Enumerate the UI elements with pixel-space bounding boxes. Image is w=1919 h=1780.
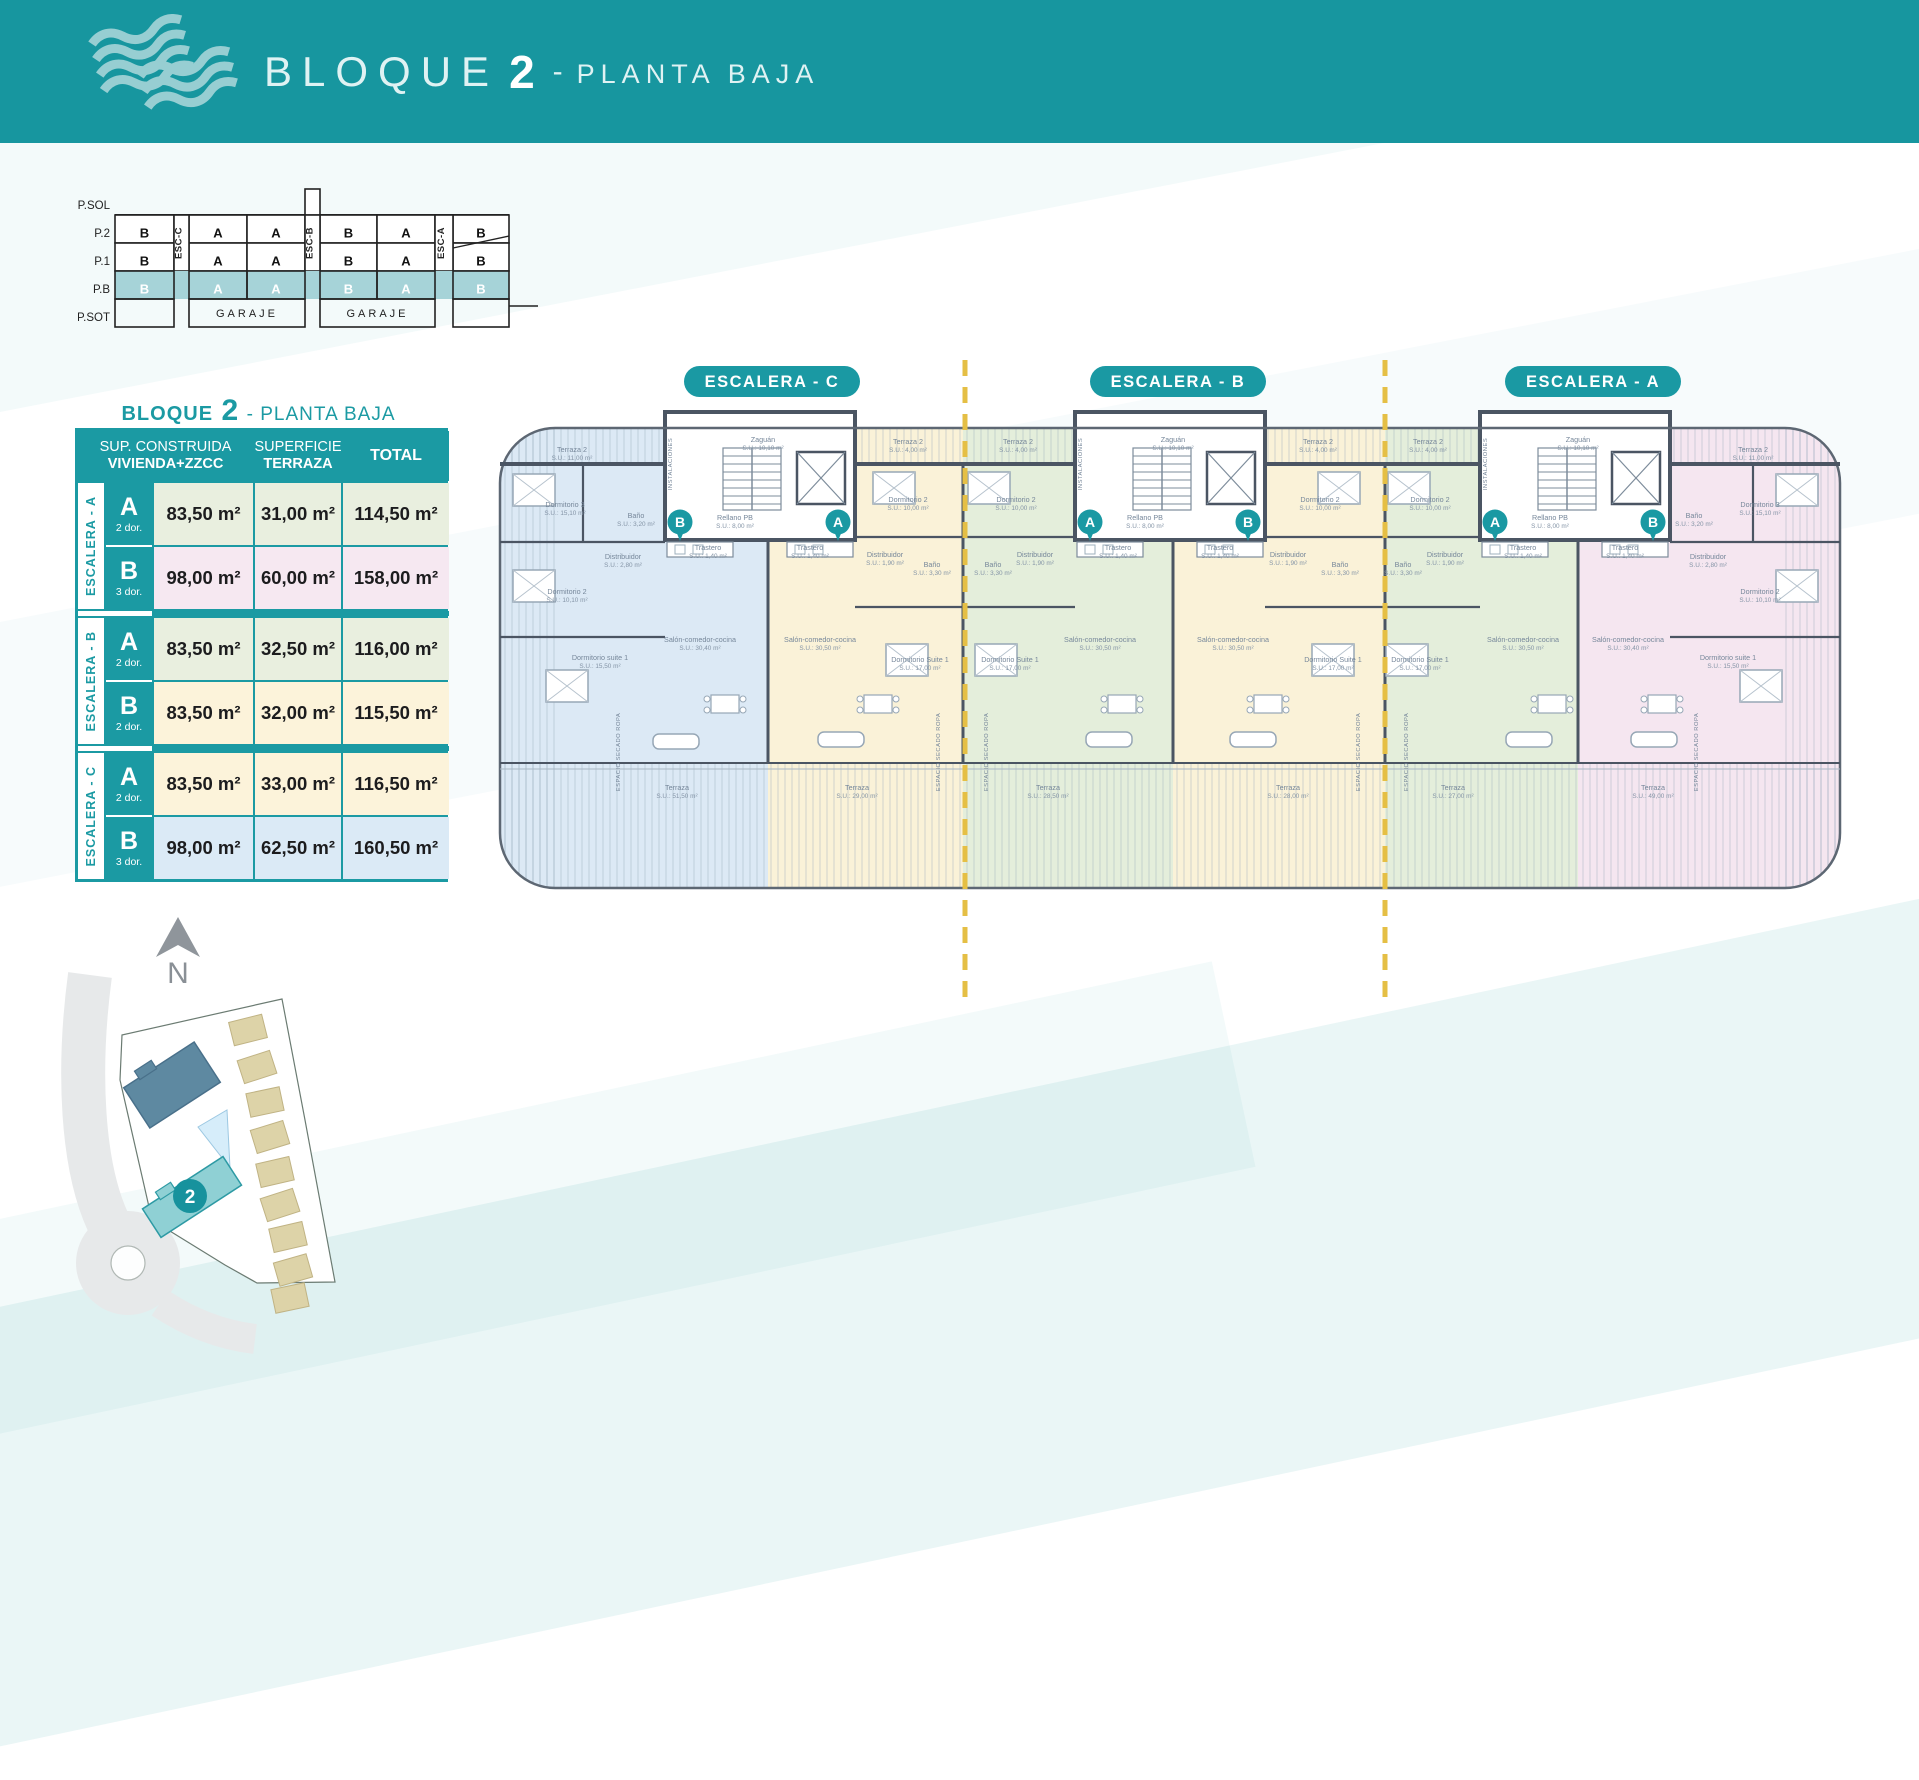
room-area-label: S.U.: 15,50 m² (579, 663, 620, 670)
title-block: BLOQUE (264, 48, 499, 96)
room-label: Baño (1686, 511, 1703, 520)
surface-table: SUP. CONSTRUIDA VIVIENDA+ZZCC SUPERFICIE… (75, 428, 448, 882)
cell-total: 115,50 m² (343, 682, 449, 744)
room-label: Dormitorio suite 1 (572, 653, 628, 662)
stair-core-a (1480, 412, 1670, 557)
unit-entrance-letter: B (1243, 514, 1253, 530)
room-label: Terraza 2 (1303, 437, 1333, 446)
title-floor: PLANTA BAJA (577, 53, 820, 90)
stack-unit-letter: B (344, 226, 353, 241)
stack-unit-letter: B (344, 254, 353, 269)
floor-plan: Terraza 2S.U.: 11,00 m²Dormitorio 3S.U.:… (488, 352, 1852, 1004)
header-line: TOTAL (370, 447, 422, 465)
room-area-label: S.U.: 4,00 m² (1299, 447, 1337, 454)
esc-label: ESC-C (174, 227, 185, 259)
cell-terraza: 32,00 m² (255, 682, 341, 744)
room-area-label: S.U.: 3,30 m² (913, 570, 951, 577)
unit-badge-a: A2 dor. (106, 753, 152, 815)
room-label: Terraza 2 (893, 437, 923, 446)
table-title-post: - PLANTA BAJA (247, 404, 396, 425)
stack-unit-letter: B (476, 282, 485, 297)
room-label: INSTALACIONES (1078, 438, 1084, 490)
stack-unit-letter: A (213, 254, 223, 269)
room-label: Salón-comedor-cocina (1064, 635, 1136, 644)
room-area-label: S.U.: 4,00 m² (889, 447, 927, 454)
cell-sup: 83,50 m² (154, 618, 253, 680)
title-separator: - (553, 55, 563, 89)
unit-badge-b: B3 dor. (106, 547, 152, 609)
room-area-label: S.U.: 1,40 m² (1504, 553, 1542, 560)
room-label: Dormitorio 2 (1300, 495, 1339, 504)
unit-entrance-letter: A (1085, 514, 1095, 530)
room-area-label: S.U.: 10,10 m² (546, 597, 587, 604)
group-label-escalera-b: ESCALERA - B (78, 618, 104, 744)
garaje-label: GARAJE (346, 308, 408, 320)
room-area-label: S.U.: 15,10 m² (1739, 510, 1780, 517)
room-area-label: S.U.: 8,00 m² (1126, 523, 1164, 530)
cell-terraza: 31,00 m² (255, 483, 341, 545)
room-area-label: S.U.: 8,00 m² (1531, 523, 1569, 530)
unit-badge-b: B2 dor. (106, 682, 152, 744)
room-label: Dormitorio 2 (1410, 495, 1449, 504)
room-label: Distribuidor (1690, 552, 1727, 561)
room-label: Terraza (845, 783, 869, 792)
room-area-label: S.U.: 30,40 m² (1607, 645, 1648, 652)
room-label: Dormitorio Suite 1 (1391, 655, 1449, 664)
room-label: Dormitorio Suite 1 (981, 655, 1039, 664)
room-area-label: S.U.: 10,10 m² (1557, 445, 1598, 452)
cell-sup: 83,50 m² (154, 753, 253, 815)
escalera-section-labels: ESCALERA - CESCALERA - BESCALERA - A (684, 366, 1681, 397)
room-label: Baño (1395, 560, 1412, 569)
north-arrow-icon (156, 917, 200, 957)
room-label: Terraza (665, 783, 689, 792)
room-label: Distribuidor (605, 552, 642, 561)
room-area-label: S.U.: 1,40 m² (1606, 553, 1644, 560)
header-bar: BLOQUE 2 - PLANTA BAJA (0, 0, 1919, 143)
room-label: Zaguán (751, 435, 775, 444)
group-label-escalera-a: ESCALERA - A (78, 483, 104, 609)
room-label: Terraza 2 (1738, 445, 1768, 454)
group-separator (78, 746, 152, 751)
room-area-label: S.U.: 2,80 m² (1689, 562, 1727, 569)
stack-unit-letter: A (213, 226, 223, 241)
group-separator (78, 611, 152, 616)
room-label: Trastero (1612, 543, 1639, 552)
header-line: SUPERFICIE (255, 439, 342, 456)
room-area-label: S.U.: 3,30 m² (974, 570, 1012, 577)
escalera-pill-label: ESCALERA - C (705, 373, 840, 391)
room-label: Salón-comedor-cocina (664, 635, 736, 644)
room-area-label: S.U.: 10,10 m² (1152, 445, 1193, 452)
cell-terraza: 33,00 m² (255, 753, 341, 815)
stack-unit-letter: A (213, 282, 223, 297)
room-area-label: S.U.: 10,00 m² (1299, 505, 1340, 512)
cell-total: 114,50 m² (343, 483, 449, 545)
floor-label: P.2 (94, 228, 110, 240)
unit-badges: A2 dor. B3 dor. (106, 753, 152, 879)
table-title: BLOQUE 2 - PLANTA BAJA (75, 394, 442, 428)
room-label: Salón-comedor-cocina (1592, 635, 1664, 644)
stack-unit-letter: A (271, 282, 281, 297)
room-area-label: S.U.: 1,40 m² (689, 553, 727, 560)
cell-total: 160,50 m² (343, 817, 449, 879)
room-label: Salón-comedor-cocina (1487, 635, 1559, 644)
header-line: TERRAZA (263, 456, 332, 473)
room-area-label: S.U.: 15,50 m² (1707, 663, 1748, 670)
group-label-escalera-c: ESCALERA - C (78, 753, 104, 879)
unit-entrance-letter: A (1490, 514, 1500, 530)
room-label: Rellano PB (1127, 513, 1163, 522)
room-label: Trastero (1207, 543, 1234, 552)
room-label: ESPACIO SECADO ROPA (616, 713, 622, 792)
unit-badges: A2 dor. B2 dor. (106, 618, 152, 744)
unit-entrance-letter: B (1648, 514, 1658, 530)
stack-unit-letter: A (401, 282, 411, 297)
room-label: ESPACIO SECADO ROPA (984, 713, 990, 792)
esc-label: ESC-B (305, 227, 316, 259)
page-title: BLOQUE 2 - PLANTA BAJA (264, 0, 819, 143)
room-area-label: S.U.: 30,50 m² (1212, 645, 1253, 652)
brand-logo (88, 14, 238, 129)
room-label: Baño (1332, 560, 1349, 569)
stack-unit-letter: A (401, 254, 411, 269)
garaje-label: GARAJE (216, 308, 278, 320)
room-label: Zaguán (1566, 435, 1590, 444)
cell-total: 158,00 m² (343, 547, 449, 609)
cell-terraza: 60,00 m² (255, 547, 341, 609)
room-area-label: S.U.: 1,90 m² (1426, 560, 1464, 567)
cell-sup: 83,50 m² (154, 682, 253, 744)
room-area-label: S.U.: 30,50 m² (1079, 645, 1120, 652)
room-area-label: S.U.: 17,00 m² (899, 665, 940, 672)
stack-unit-letter: B (140, 226, 149, 241)
room-area-label: S.U.: 10,00 m² (995, 505, 1036, 512)
room-label: Trastero (1105, 543, 1132, 552)
unit-entrance-letter: A (833, 514, 843, 530)
unit-badge-b: B3 dor. (106, 817, 152, 879)
room-area-label: S.U.: 10,00 m² (1409, 505, 1450, 512)
stack-unit-letter: B (344, 282, 353, 297)
room-area-label: S.U.: 11,00 m² (552, 455, 593, 462)
room-area-label: S.U.: 29,00 m² (836, 793, 877, 800)
site-map: 2 N (60, 915, 360, 1360)
room-area-label: S.U.: 1,40 m² (791, 553, 829, 560)
building-stack-diagram: P.SOLP.2P.1P.BP.SOTBAABABBAABABBAABABESC… (78, 188, 548, 344)
room-area-label: S.U.: 51,50 m² (656, 793, 697, 800)
escalera-pill-label: ESCALERA - B (1111, 373, 1246, 391)
col-header-terraza: SUPERFICIE TERRAZA (255, 431, 341, 481)
header-line: VIVIENDA+ZZCC (108, 456, 224, 473)
group-separator (154, 746, 449, 751)
room-area-label: S.U.: 15,10 m² (544, 510, 585, 517)
room-area-label: S.U.: 3,30 m² (1321, 570, 1359, 577)
room-label: ESPACIO SECADO ROPA (936, 713, 942, 792)
floor-label: P.B (93, 284, 110, 296)
room-area-label: S.U.: 1,40 m² (1099, 553, 1137, 560)
unit-badges: A2 dor. B3 dor. (106, 483, 152, 609)
stack-unit-letter: B (476, 226, 485, 241)
escalera-pill-label: ESCALERA - A (1526, 373, 1660, 391)
unit-badge-a: A2 dor. (106, 483, 152, 545)
room-label: Terraza 2 (1413, 437, 1443, 446)
group-separator (154, 611, 449, 616)
room-area-label: S.U.: 1,40 m² (1201, 553, 1239, 560)
room-label: Baño (628, 511, 645, 520)
room-label: INSTALACIONES (668, 438, 674, 490)
floor-label: P.1 (94, 256, 110, 268)
stack-unit-letter: B (140, 254, 149, 269)
floor-label: P.SOL (78, 200, 111, 212)
room-label: Salón-comedor-cocina (1197, 635, 1269, 644)
room-label: ESPACIO SECADO ROPA (1356, 713, 1362, 792)
room-area-label: S.U.: 27,00 m² (1432, 793, 1473, 800)
cell-terraza: 62,50 m² (255, 817, 341, 879)
room-label: Dormitorio 2 (996, 495, 1035, 504)
floor-label: P.SOT (78, 312, 110, 324)
room-area-label: S.U.: 30,40 m² (679, 645, 720, 652)
room-label: Trastero (797, 543, 824, 552)
room-area-label: S.U.: 1,90 m² (866, 560, 904, 567)
stack-unit-letter: A (271, 226, 281, 241)
room-area-label: S.U.: 30,50 m² (799, 645, 840, 652)
room-label: Trastero (695, 543, 722, 552)
unit-entrance-letter: B (675, 514, 685, 530)
stair-core-c (665, 412, 855, 557)
room-label: Distribuidor (1017, 550, 1054, 559)
room-label: Dormitorio Suite 1 (891, 655, 949, 664)
stair-core-b (1075, 412, 1265, 557)
room-label: Distribuidor (867, 550, 904, 559)
room-label: Zaguán (1161, 435, 1185, 444)
room-label: Distribuidor (1427, 550, 1464, 559)
room-label: Distribuidor (1270, 550, 1307, 559)
room-label: Baño (924, 560, 941, 569)
table-title-num: 2 (222, 394, 239, 427)
room-area-label: S.U.: 17,00 m² (989, 665, 1030, 672)
room-label: Terraza (1036, 783, 1060, 792)
page: { "header": { "title_block": "BLOQUE", "… (0, 0, 1919, 1365)
cell-sup: 83,50 m² (154, 483, 253, 545)
room-area-label: S.U.: 3,30 m² (1384, 570, 1422, 577)
room-area-label: S.U.: 8,00 m² (716, 523, 754, 530)
room-label: Terraza 2 (557, 445, 587, 454)
room-area-label: S.U.: 4,00 m² (1409, 447, 1447, 454)
room-label: Terraza 2 (1003, 437, 1033, 446)
room-label: Dormitorio Suite 1 (1304, 655, 1362, 664)
stack-unit-letter: B (140, 282, 149, 297)
room-label: Dormitorio suite 1 (1700, 653, 1756, 662)
room-label: Terraza (1641, 783, 1665, 792)
room-area-label: S.U.: 17,00 m² (1312, 665, 1353, 672)
room-area-label: S.U.: 49,00 m² (1632, 793, 1673, 800)
room-area-label: S.U.: 10,10 m² (742, 445, 783, 452)
room-area-label: S.U.: 30,50 m² (1502, 645, 1543, 652)
north-label: N (167, 957, 189, 990)
room-label: Baño (985, 560, 1002, 569)
room-area-label: S.U.: 1,90 m² (1016, 560, 1054, 567)
room-label: Terraza (1276, 783, 1300, 792)
cell-sup: 98,00 m² (154, 817, 253, 879)
room-area-label: S.U.: 1,90 m² (1269, 560, 1307, 567)
room-label: ESPACIO SECADO ROPA (1694, 713, 1700, 792)
roundabout (111, 1246, 145, 1280)
title-number: 2 (509, 45, 535, 99)
room-area-label: S.U.: 3,20 m² (617, 521, 655, 528)
cell-total: 116,50 m² (343, 753, 449, 815)
room-area-label: S.U.: 11,00 m² (1733, 455, 1774, 462)
col-header-total: TOTAL (343, 431, 449, 481)
room-label: Rellano PB (717, 513, 753, 522)
room-area-label: S.U.: 10,10 m² (1739, 597, 1780, 604)
room-area-label: S.U.: 3,20 m² (1675, 521, 1713, 528)
room-area-label: S.U.: 2,80 m² (604, 562, 642, 569)
room-label: Dormitorio 2 (888, 495, 927, 504)
unit-badge-a: A2 dor. (106, 618, 152, 680)
room-label: Dormitorio 3 (1740, 500, 1779, 509)
stack-unit-letter: B (476, 254, 485, 269)
cell-terraza: 32,50 m² (255, 618, 341, 680)
cell-total: 116,00 m² (343, 618, 449, 680)
room-area-label: S.U.: 4,00 m² (999, 447, 1037, 454)
room-area-label: S.U.: 10,00 m² (887, 505, 928, 512)
room-label: Dormitorio 2 (1740, 587, 1779, 596)
cell-sup: 98,00 m² (154, 547, 253, 609)
esc-label: ESC-A (436, 227, 447, 259)
table-title-pre: BLOQUE (121, 403, 213, 425)
room-area-label: S.U.: 28,00 m² (1267, 793, 1308, 800)
room-label: Terraza (1441, 783, 1465, 792)
room-label: INSTALACIONES (1483, 438, 1489, 490)
room-area-label: S.U.: 28,50 m² (1027, 793, 1068, 800)
header-line: SUP. CONSTRUIDA (100, 439, 232, 456)
block-2-badge-label: 2 (185, 1187, 196, 1208)
room-label: ESPACIO SECADO ROPA (1404, 713, 1410, 792)
room-label: Dormitorio 2 (547, 587, 586, 596)
room-label: Rellano PB (1532, 513, 1568, 522)
stack-unit-letter: A (401, 226, 411, 241)
stack-unit-letter: A (271, 254, 281, 269)
col-header-construida: SUP. CONSTRUIDA VIVIENDA+ZZCC (78, 431, 253, 481)
room-label: Trastero (1510, 543, 1537, 552)
room-area-label: S.U.: 17,00 m² (1399, 665, 1440, 672)
room-label: Dormitorio 3 (545, 500, 584, 509)
room-label: Salón-comedor-cocina (784, 635, 856, 644)
